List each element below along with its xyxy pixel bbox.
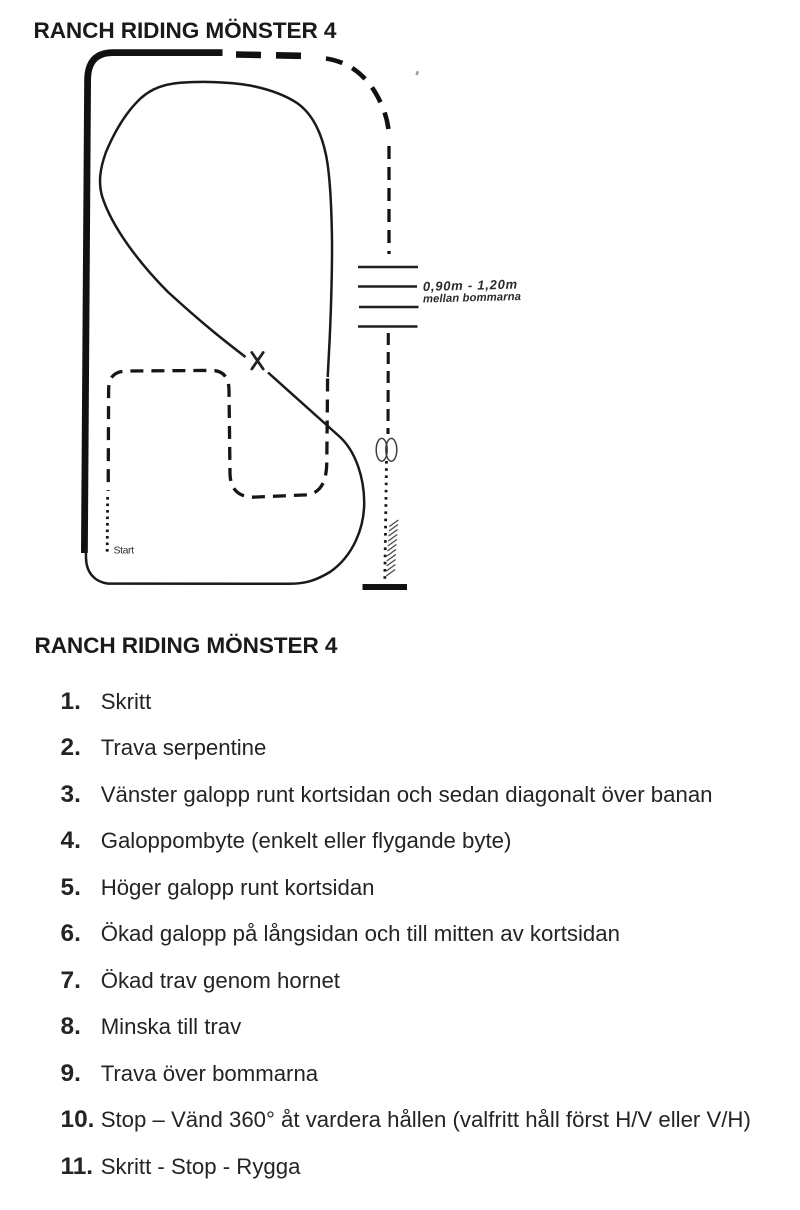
svg-text:Start: Start bbox=[114, 545, 135, 557]
svg-text:mellan bommarna: mellan bommarna bbox=[423, 291, 521, 306]
